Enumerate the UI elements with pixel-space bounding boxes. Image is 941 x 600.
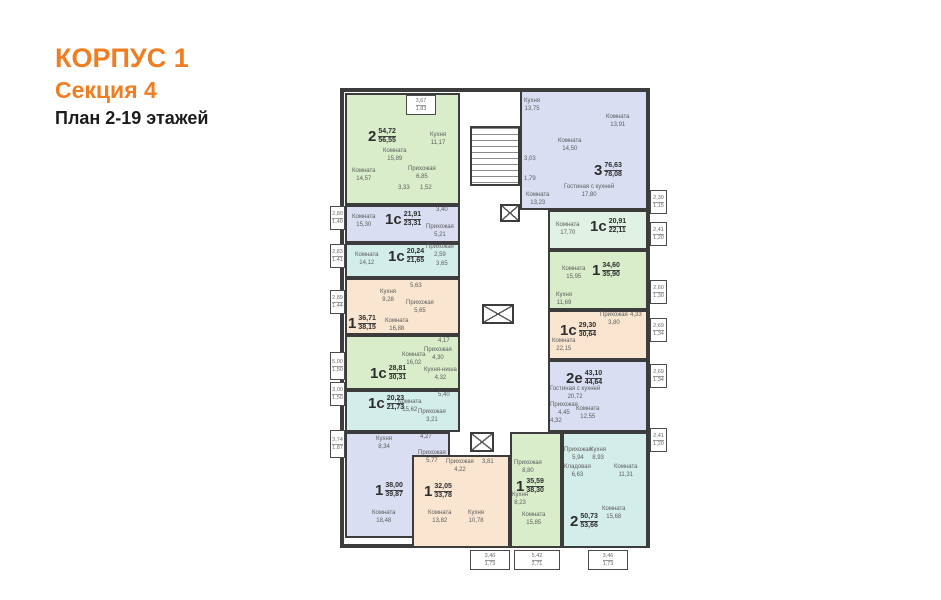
room-label: 3,65: [436, 261, 448, 269]
room-label: 4,33: [630, 312, 642, 320]
elevator: [500, 204, 520, 222]
balcony: 3,461,73: [470, 550, 510, 570]
room-label: Прихожая5,65: [406, 300, 434, 315]
apartment-label-a2: 1с21,9123,31: [385, 211, 421, 229]
apartment-label-a4: 136,7138,15: [348, 315, 376, 333]
room-label: Комната15,85: [522, 512, 546, 527]
apartment-label-a8: 132,0533,78: [424, 483, 452, 501]
apartment-label-a9: 135,5938,30: [516, 478, 544, 496]
room-label: Прихожая8,80: [514, 460, 542, 475]
balcony: 5,001,50: [330, 352, 345, 380]
apartment-label-b3: 134,6035,90: [592, 262, 620, 280]
room-label: Кухня11,69: [556, 292, 572, 307]
room-label: 4,17: [438, 338, 450, 346]
balcony: 2,601,30: [650, 280, 667, 304]
room-label: 1,79: [524, 176, 536, 184]
room-label: Комната13,82: [428, 510, 452, 525]
balcony: 5,422,71: [514, 550, 560, 570]
balcony: 3,001,50: [330, 382, 345, 406]
room-label: 3,40: [436, 207, 448, 215]
elevator: [482, 304, 514, 324]
balcony: 3,671,83: [406, 95, 436, 115]
room-label: 4,32: [550, 418, 562, 426]
room-label: Комната14,12: [355, 252, 379, 267]
apartment-label-a7: 138,0039,87: [375, 482, 403, 500]
room-label: Кухня11,17: [430, 132, 446, 147]
balcony: 2,801,40: [330, 206, 345, 230]
room-label: Комната13,91: [606, 114, 630, 129]
room-label: Прихожая5,21: [426, 224, 454, 239]
room-label: Кухня10,78: [468, 510, 484, 525]
balcony: 2,411,20: [650, 222, 667, 246]
balcony: 2,891,44: [330, 290, 345, 314]
balcony: 2,691,34: [650, 318, 667, 342]
balcony: 2,301,15: [650, 190, 667, 214]
room-label: Прихожая5,77: [418, 450, 446, 465]
floor-plan: 254,7256,55Комната15,89Кухня11,17Комната…: [0, 0, 941, 600]
room-label: Прихожая3,21: [418, 409, 446, 424]
room-label: Кухня8,93: [590, 447, 606, 462]
room-label: 5,63: [410, 283, 422, 291]
apartment-label-b4: 1с29,3030,64: [560, 322, 596, 340]
room-label: Гостиная с кухней17,80: [564, 184, 614, 199]
stairwell: [470, 126, 520, 186]
apartment-label-a5: 1с28,8130,31: [370, 365, 406, 383]
room-label: 1,52: [420, 185, 432, 193]
balcony: 2,831,41: [330, 244, 345, 268]
apartment-label-b1: 376,6378,08: [594, 162, 622, 180]
room-label: Комната22,15: [552, 338, 576, 353]
room-label: Комната11,31: [614, 464, 638, 479]
room-label: Кладовая6,63: [564, 464, 591, 479]
apartment-label-a3: 1с20,2421,65: [388, 248, 424, 266]
room-label: 3,81: [482, 459, 494, 467]
room-label: Комната15,30: [352, 214, 376, 229]
room-label: Прихожая6,85: [408, 166, 436, 181]
room-label: Кухня-ниша4,32: [424, 367, 457, 382]
room-label: Гостиная с кухней20,72: [550, 386, 600, 401]
balcony: 3,741,87: [330, 430, 345, 458]
room-label: 3,03: [524, 156, 536, 164]
room-label: Комната15,89: [383, 148, 407, 163]
elevator: [470, 432, 494, 452]
room-label: Прихожая4,30: [424, 347, 452, 362]
room-label: Кухня13,75: [524, 98, 540, 113]
balcony: 2,691,34: [650, 364, 667, 388]
room-label: Прихожая5,94: [564, 447, 592, 462]
room-label: Комната15,95: [562, 266, 586, 281]
apartment-label-a1: 254,7256,55: [368, 128, 396, 146]
room-label: Комната17,70: [556, 222, 580, 237]
room-label: Прихожая4,22: [446, 459, 474, 474]
balcony: 2,411,20: [650, 428, 667, 452]
room-label: Кухня8,34: [376, 436, 392, 451]
room-label: Прихожая3,80: [600, 312, 628, 327]
room-label: Комната18,48: [372, 510, 396, 525]
room-label: 3,33: [398, 185, 410, 193]
room-label: Прихожая4,45: [550, 402, 578, 417]
page: КОРПУС 1 Секция 4 План 2-19 этажей 254,7…: [0, 0, 941, 600]
apartment-label-b5: 2е43,1044,64: [566, 370, 602, 388]
room-label: Прихожая2,59: [426, 244, 454, 259]
room-label: Комната13,23: [526, 192, 550, 207]
apartment-label-a6: 1с20,2321,73: [368, 395, 404, 413]
room-label: Комната15,68: [602, 506, 626, 521]
balcony: 3,461,73: [588, 550, 628, 570]
room-label: 5,40: [438, 392, 450, 400]
room-label: Комната14,50: [558, 138, 582, 153]
room-label: Комната16,88: [385, 318, 409, 333]
room-label: Комната12,55: [576, 406, 600, 421]
apartment-label-b2: 1с20,9122,11: [590, 218, 626, 236]
room-label: Кухня9,28: [380, 289, 396, 304]
apartment-label-a10: 250,7353,66: [570, 513, 598, 531]
room-label: Комната14,57: [352, 168, 376, 183]
room-label: 4,27: [420, 434, 432, 442]
